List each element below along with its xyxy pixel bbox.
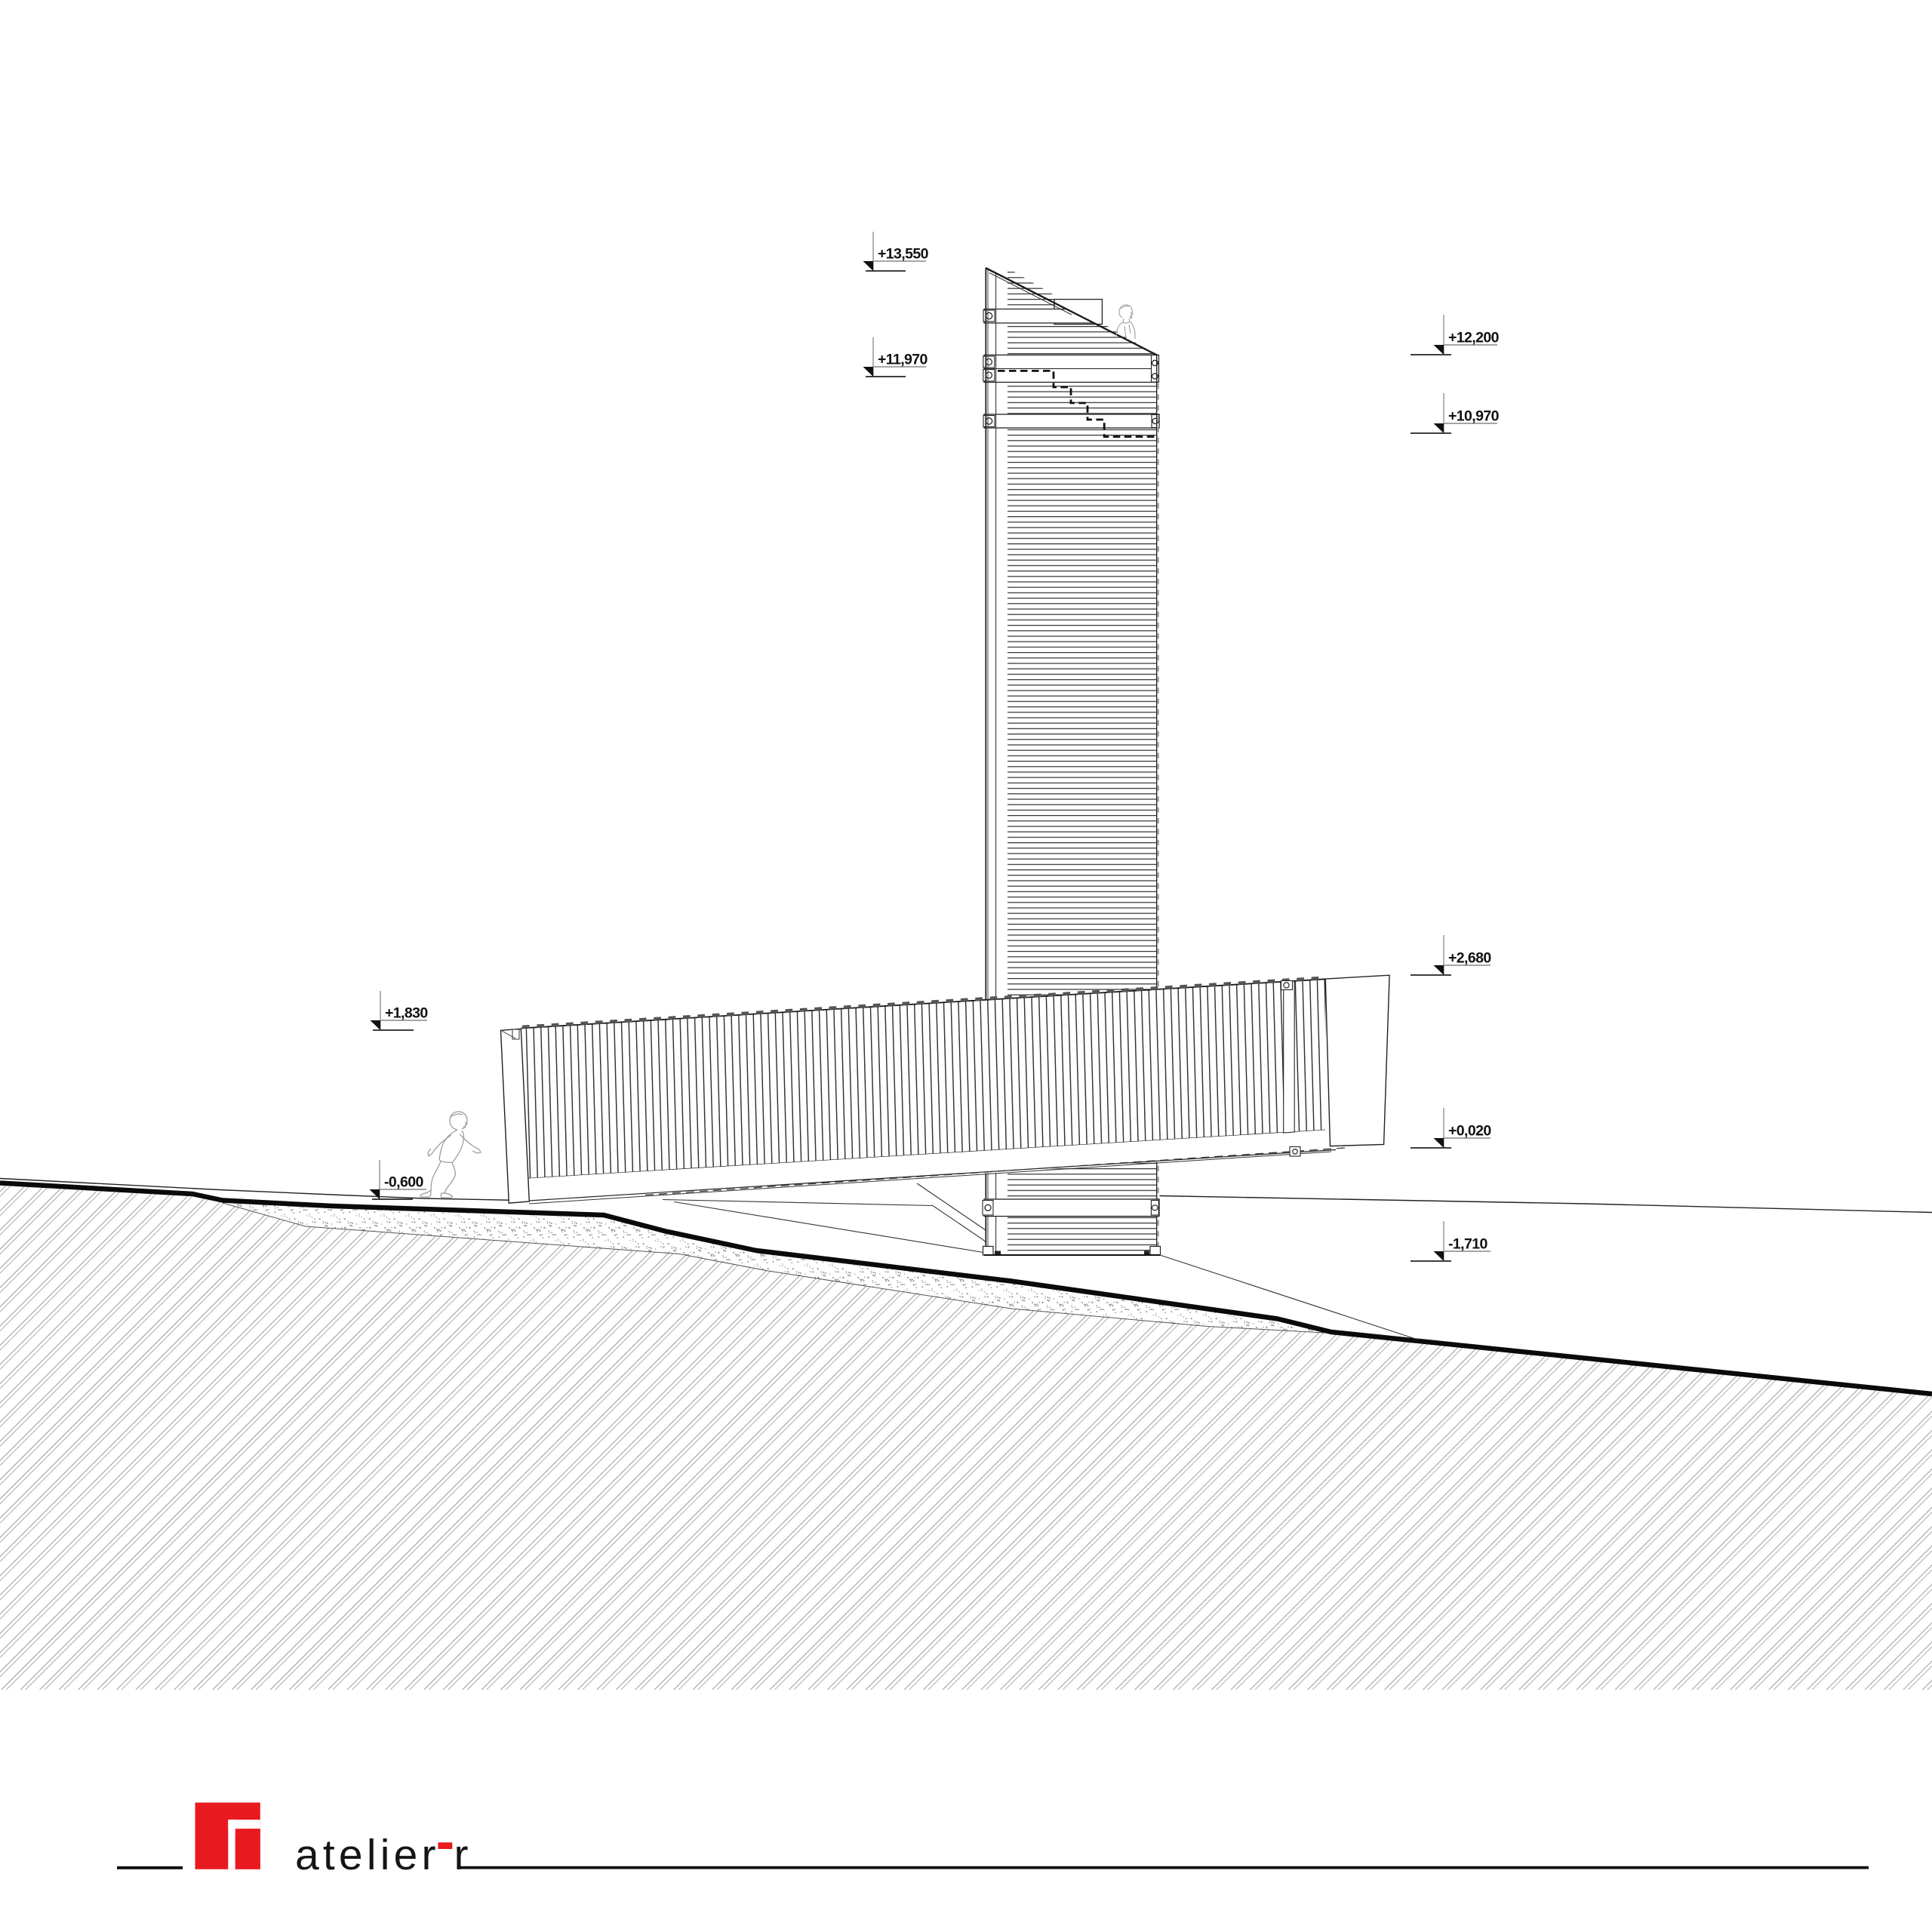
- svg-text:+2,680: +2,680: [1448, 950, 1491, 967]
- svg-text:-0,600: -0,600: [384, 1174, 423, 1191]
- svg-text:-1,710: -1,710: [1448, 1236, 1487, 1253]
- svg-text:+13,550: +13,550: [878, 246, 929, 263]
- svg-text:+0,020: +0,020: [1448, 1123, 1491, 1140]
- svg-text:+12,200: +12,200: [1448, 330, 1500, 346]
- svg-text:+11,970: +11,970: [878, 352, 928, 368]
- svg-text:r: r: [454, 1831, 469, 1879]
- svg-text:+10,970: +10,970: [1448, 408, 1500, 425]
- svg-text:atelier: atelier: [295, 1831, 440, 1879]
- svg-text:+1,830: +1,830: [385, 1005, 428, 1022]
